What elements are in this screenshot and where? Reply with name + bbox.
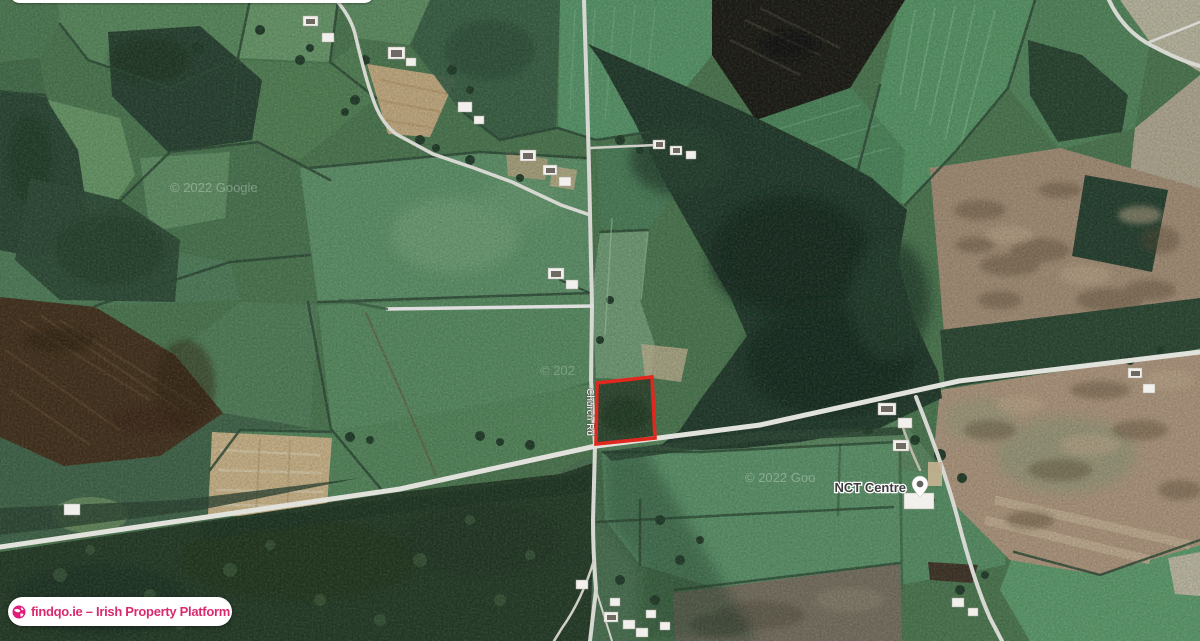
svg-text:Church Rd: Church Rd	[584, 388, 595, 436]
svg-text:© 202: © 202	[540, 363, 575, 378]
svg-text:© 2022 Goo: © 2022 Goo	[745, 470, 815, 485]
svg-text:NCT Centre: NCT Centre	[834, 480, 906, 495]
svg-text:© 2022 Google: © 2022 Google	[170, 180, 258, 195]
